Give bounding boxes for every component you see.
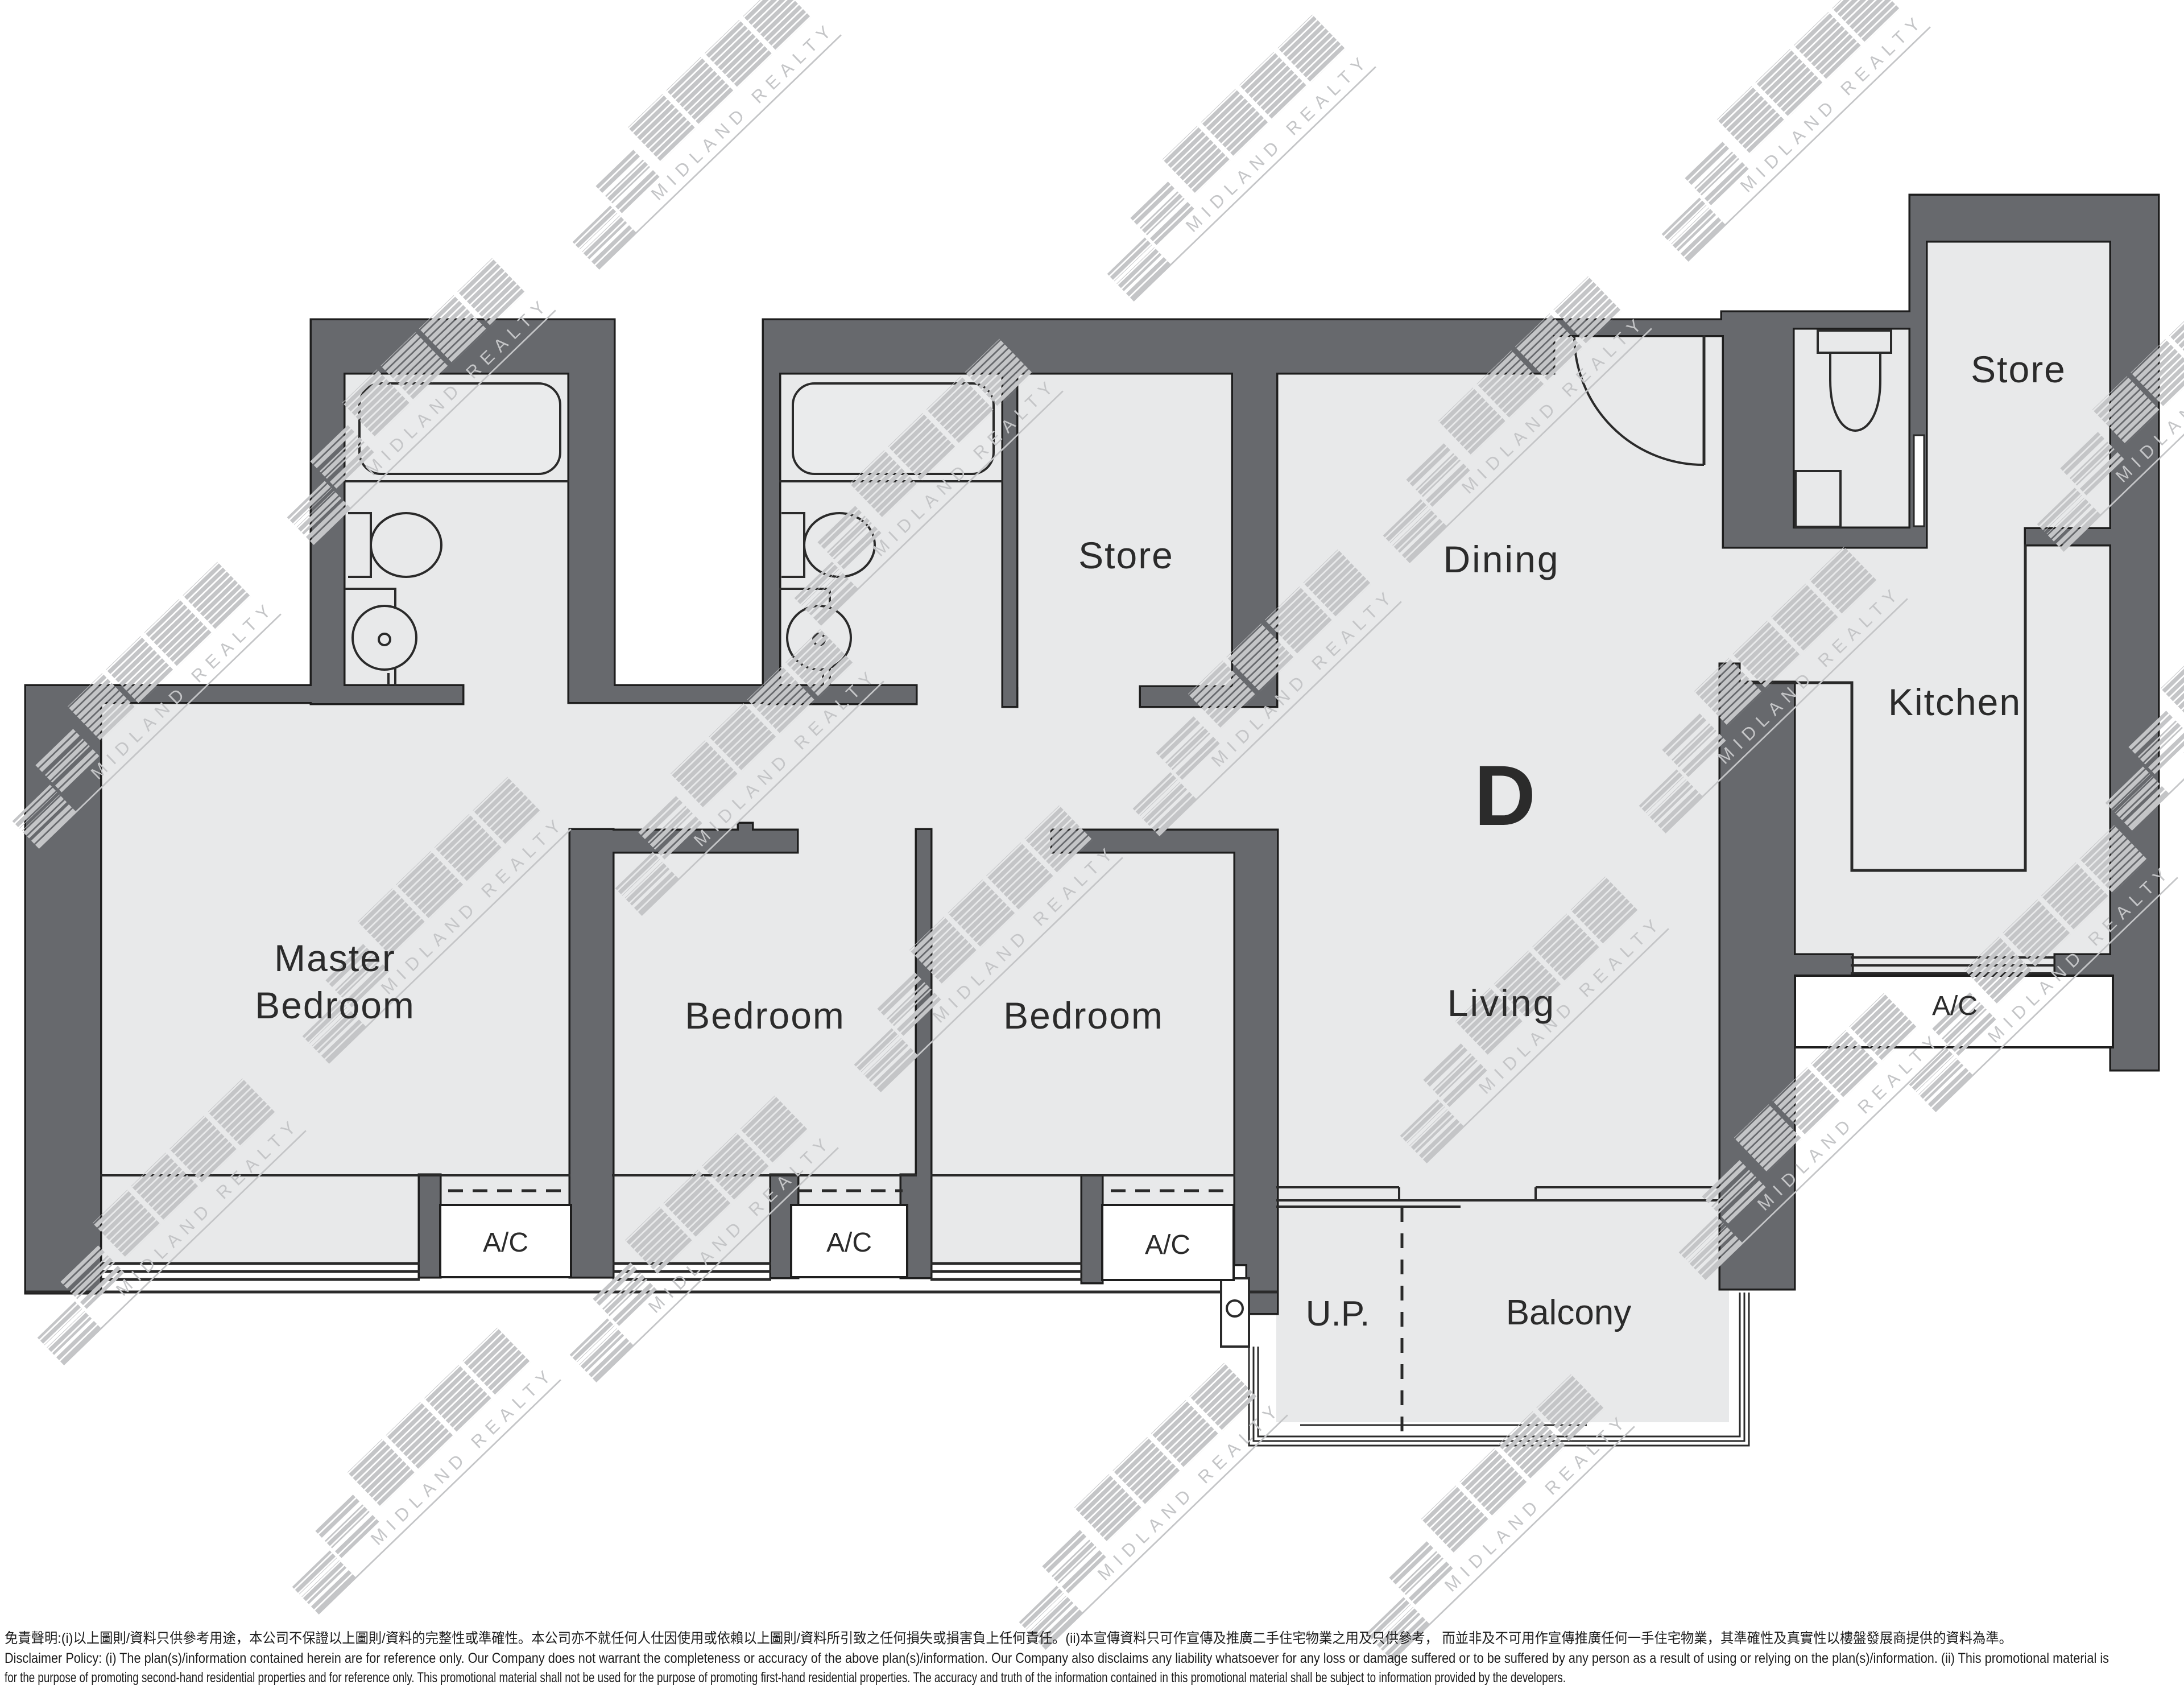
- svg-text:D: D: [1474, 748, 1536, 843]
- svg-text:Store: Store: [1971, 348, 2066, 390]
- svg-text:Store: Store: [1078, 534, 1174, 576]
- svg-text:Master: Master: [274, 937, 396, 979]
- svg-text:A/C: A/C: [826, 1228, 872, 1258]
- svg-text:A/C: A/C: [1145, 1230, 1190, 1260]
- svg-text:U.P.: U.P.: [1306, 1294, 1370, 1333]
- svg-text:Living: Living: [1447, 982, 1556, 1024]
- svg-text:Balcony: Balcony: [1506, 1293, 1632, 1332]
- svg-text:Disclaimer Policy: (i) The pla: Disclaimer Policy: (i) The plan(s)/infor…: [5, 1650, 2109, 1666]
- svg-text:Bedroom: Bedroom: [255, 984, 415, 1026]
- svg-text:A/C: A/C: [483, 1228, 528, 1258]
- svg-text:for the purpose of promoting s: for the purpose of promoting second-hand…: [5, 1670, 1566, 1686]
- svg-text:Bedroom: Bedroom: [685, 994, 845, 1037]
- svg-text:Kitchen: Kitchen: [1888, 681, 2021, 723]
- svg-text:Bedroom: Bedroom: [1003, 994, 1164, 1037]
- svg-text:Dining: Dining: [1443, 538, 1560, 580]
- svg-text:A/C: A/C: [1932, 991, 1978, 1021]
- svg-text:免責聲明:(i)以上圖則/資料只供參考用途，本公司不保證以上: 免責聲明:(i)以上圖則/資料只供參考用途，本公司不保證以上圖則/資料的完整性或…: [5, 1630, 2012, 1646]
